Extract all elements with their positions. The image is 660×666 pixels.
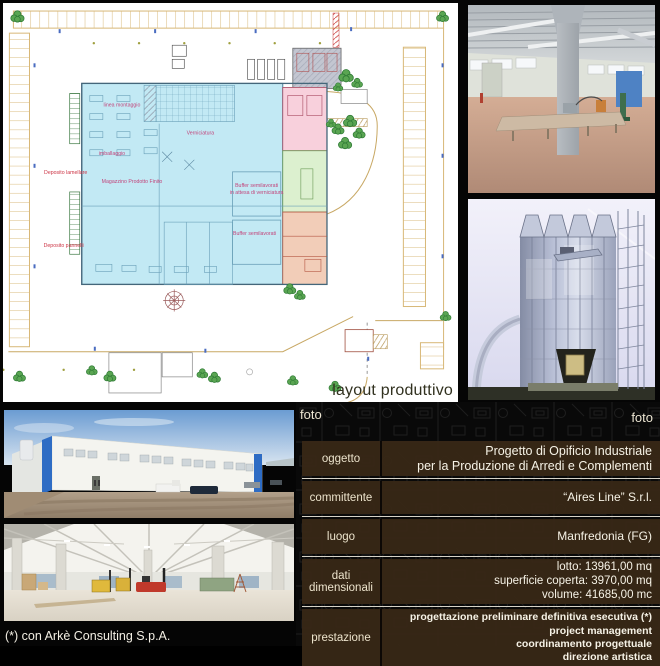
value-line: volume: 41685,00 mc <box>542 589 652 603</box>
value-line: lotto: 13961,00 mq <box>557 561 652 575</box>
row-separator <box>302 516 660 517</box>
warehouse-interior-illustration <box>4 524 294 621</box>
photo-warehouse-interior <box>4 524 294 621</box>
factory-interior-illustration <box>468 5 655 193</box>
row-label: prestazione <box>302 609 382 666</box>
row-value: lotto: 13961,00 mq superficie coperta: 3… <box>382 559 660 604</box>
site-plan-panel: linea montaggio Verniciatura imballaggio… <box>3 3 458 402</box>
row-separator <box>302 478 660 479</box>
plan-caption: layout produttivo <box>332 382 453 400</box>
row-label: oggetto <box>302 441 382 476</box>
table-row-committente: committente “Aires Line” S.r.l. <box>302 481 660 514</box>
row-label: luogo <box>302 519 382 554</box>
table-row-luogo: luogo Manfredonia (FG) <box>302 519 660 554</box>
row-value: progettazione preliminare definitiva ese… <box>382 609 660 666</box>
photo-caption-left: foto <box>300 407 322 422</box>
row-label: committente <box>302 481 382 514</box>
photo-caption-right: foto <box>631 410 653 425</box>
row-separator <box>302 556 660 557</box>
value-line: Progetto di Opificio Industriale <box>485 444 652 459</box>
info-quadrant: foto foto oggetto Progetto di Opificio I… <box>296 402 660 646</box>
row-value: Progetto di Opificio Industriale per la … <box>382 441 660 476</box>
label-deposito-pannelli: Deposito pannelli <box>44 243 84 249</box>
value-line: superficie coperta: 3970,00 mq <box>494 575 652 589</box>
photo-silo <box>468 199 655 400</box>
value-line: “Aires Line” S.r.l. <box>563 490 652 504</box>
site-plan-drawing: linea montaggio Verniciatura imballaggio… <box>3 3 458 402</box>
row-label: dati dimensionali <box>302 559 382 604</box>
label-linea-montaggio: linea montaggio <box>104 103 141 109</box>
project-info-table: oggetto Progetto di Opificio Industriale… <box>302 441 660 666</box>
red-hatch-strip <box>333 13 339 47</box>
annex-block <box>293 48 341 88</box>
value-line: Manfredonia (FG) <box>557 529 652 543</box>
table-row-oggetto: oggetto Progetto di Opificio Industriale… <box>302 441 660 476</box>
footer-credit: (*) con Arkè Consulting S.p.A. <box>5 629 170 643</box>
row-separator <box>302 606 660 607</box>
rack-block-1 <box>70 93 80 143</box>
value-line: direzione artistica <box>563 651 652 664</box>
label-buffer1-l1: Buffer semilavorati <box>235 183 278 189</box>
label-buffer1-l2: in attesa di verniciatura <box>230 190 284 196</box>
label-verniciatura: Verniciatura <box>187 131 215 137</box>
value-line: progettazione preliminare definitiva ese… <box>410 611 652 624</box>
row-value: “Aires Line” S.r.l. <box>382 481 660 514</box>
label-buffer2: Buffer semilavorati <box>233 231 276 237</box>
value-line: per la Produzione di Arredi e Complement… <box>417 459 652 474</box>
table-row-prestazione: prestazione progettazione preliminare de… <box>302 609 660 666</box>
value-line: project management <box>549 625 652 638</box>
row-value: Manfredonia (FG) <box>382 519 660 554</box>
portfolio-slide: linea montaggio Verniciatura imballaggio… <box>0 0 660 646</box>
building-exterior-illustration <box>4 410 294 518</box>
label-imballaggio: imballaggio <box>99 151 125 157</box>
label-deposito-lamellare: Deposito lamellare <box>44 170 87 176</box>
table-row-dati-dimensionali: dati dimensionali lotto: 13961,00 mq sup… <box>302 559 660 604</box>
photo-factory-interior <box>468 5 655 193</box>
photo-building-exterior <box>4 410 294 518</box>
label-magazzino: Magazzino Prodotto Finito <box>102 179 163 185</box>
silo-illustration <box>468 199 655 400</box>
value-line: coordinamento progettuale <box>516 638 652 651</box>
